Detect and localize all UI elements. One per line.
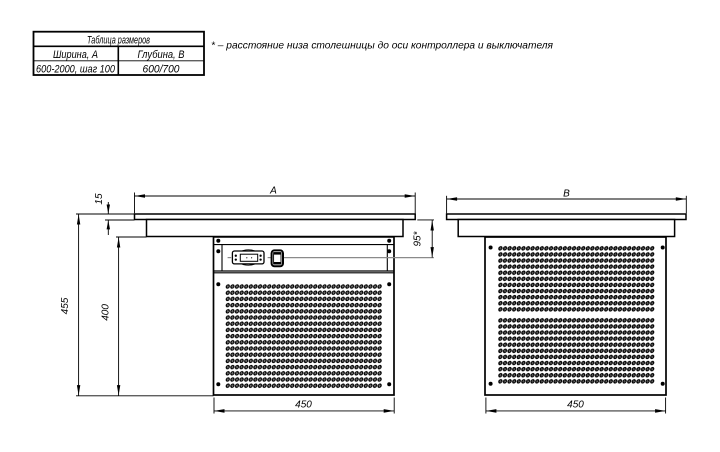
svg-text:Таблица размеров: Таблица размеров <box>87 34 150 46</box>
svg-text:* – расстояние низа столешницы: * – расстояние низа столешницы до оси ко… <box>211 41 554 52</box>
svg-text:450: 450 <box>295 400 312 411</box>
svg-text:А: А <box>269 186 277 197</box>
svg-text:400: 400 <box>101 304 112 321</box>
svg-text:В: В <box>563 189 570 200</box>
svg-text:Ширина, А: Ширина, А <box>53 49 98 61</box>
svg-text:95*: 95* <box>413 230 424 246</box>
svg-text:600/700: 600/700 <box>143 63 180 75</box>
svg-text:450: 450 <box>567 400 584 411</box>
svg-text:600-2000, шаг 100: 600-2000, шаг 100 <box>36 63 115 75</box>
svg-text:455: 455 <box>60 297 71 314</box>
svg-text:Глубина, В: Глубина, В <box>138 49 185 61</box>
svg-text:15: 15 <box>94 193 105 205</box>
